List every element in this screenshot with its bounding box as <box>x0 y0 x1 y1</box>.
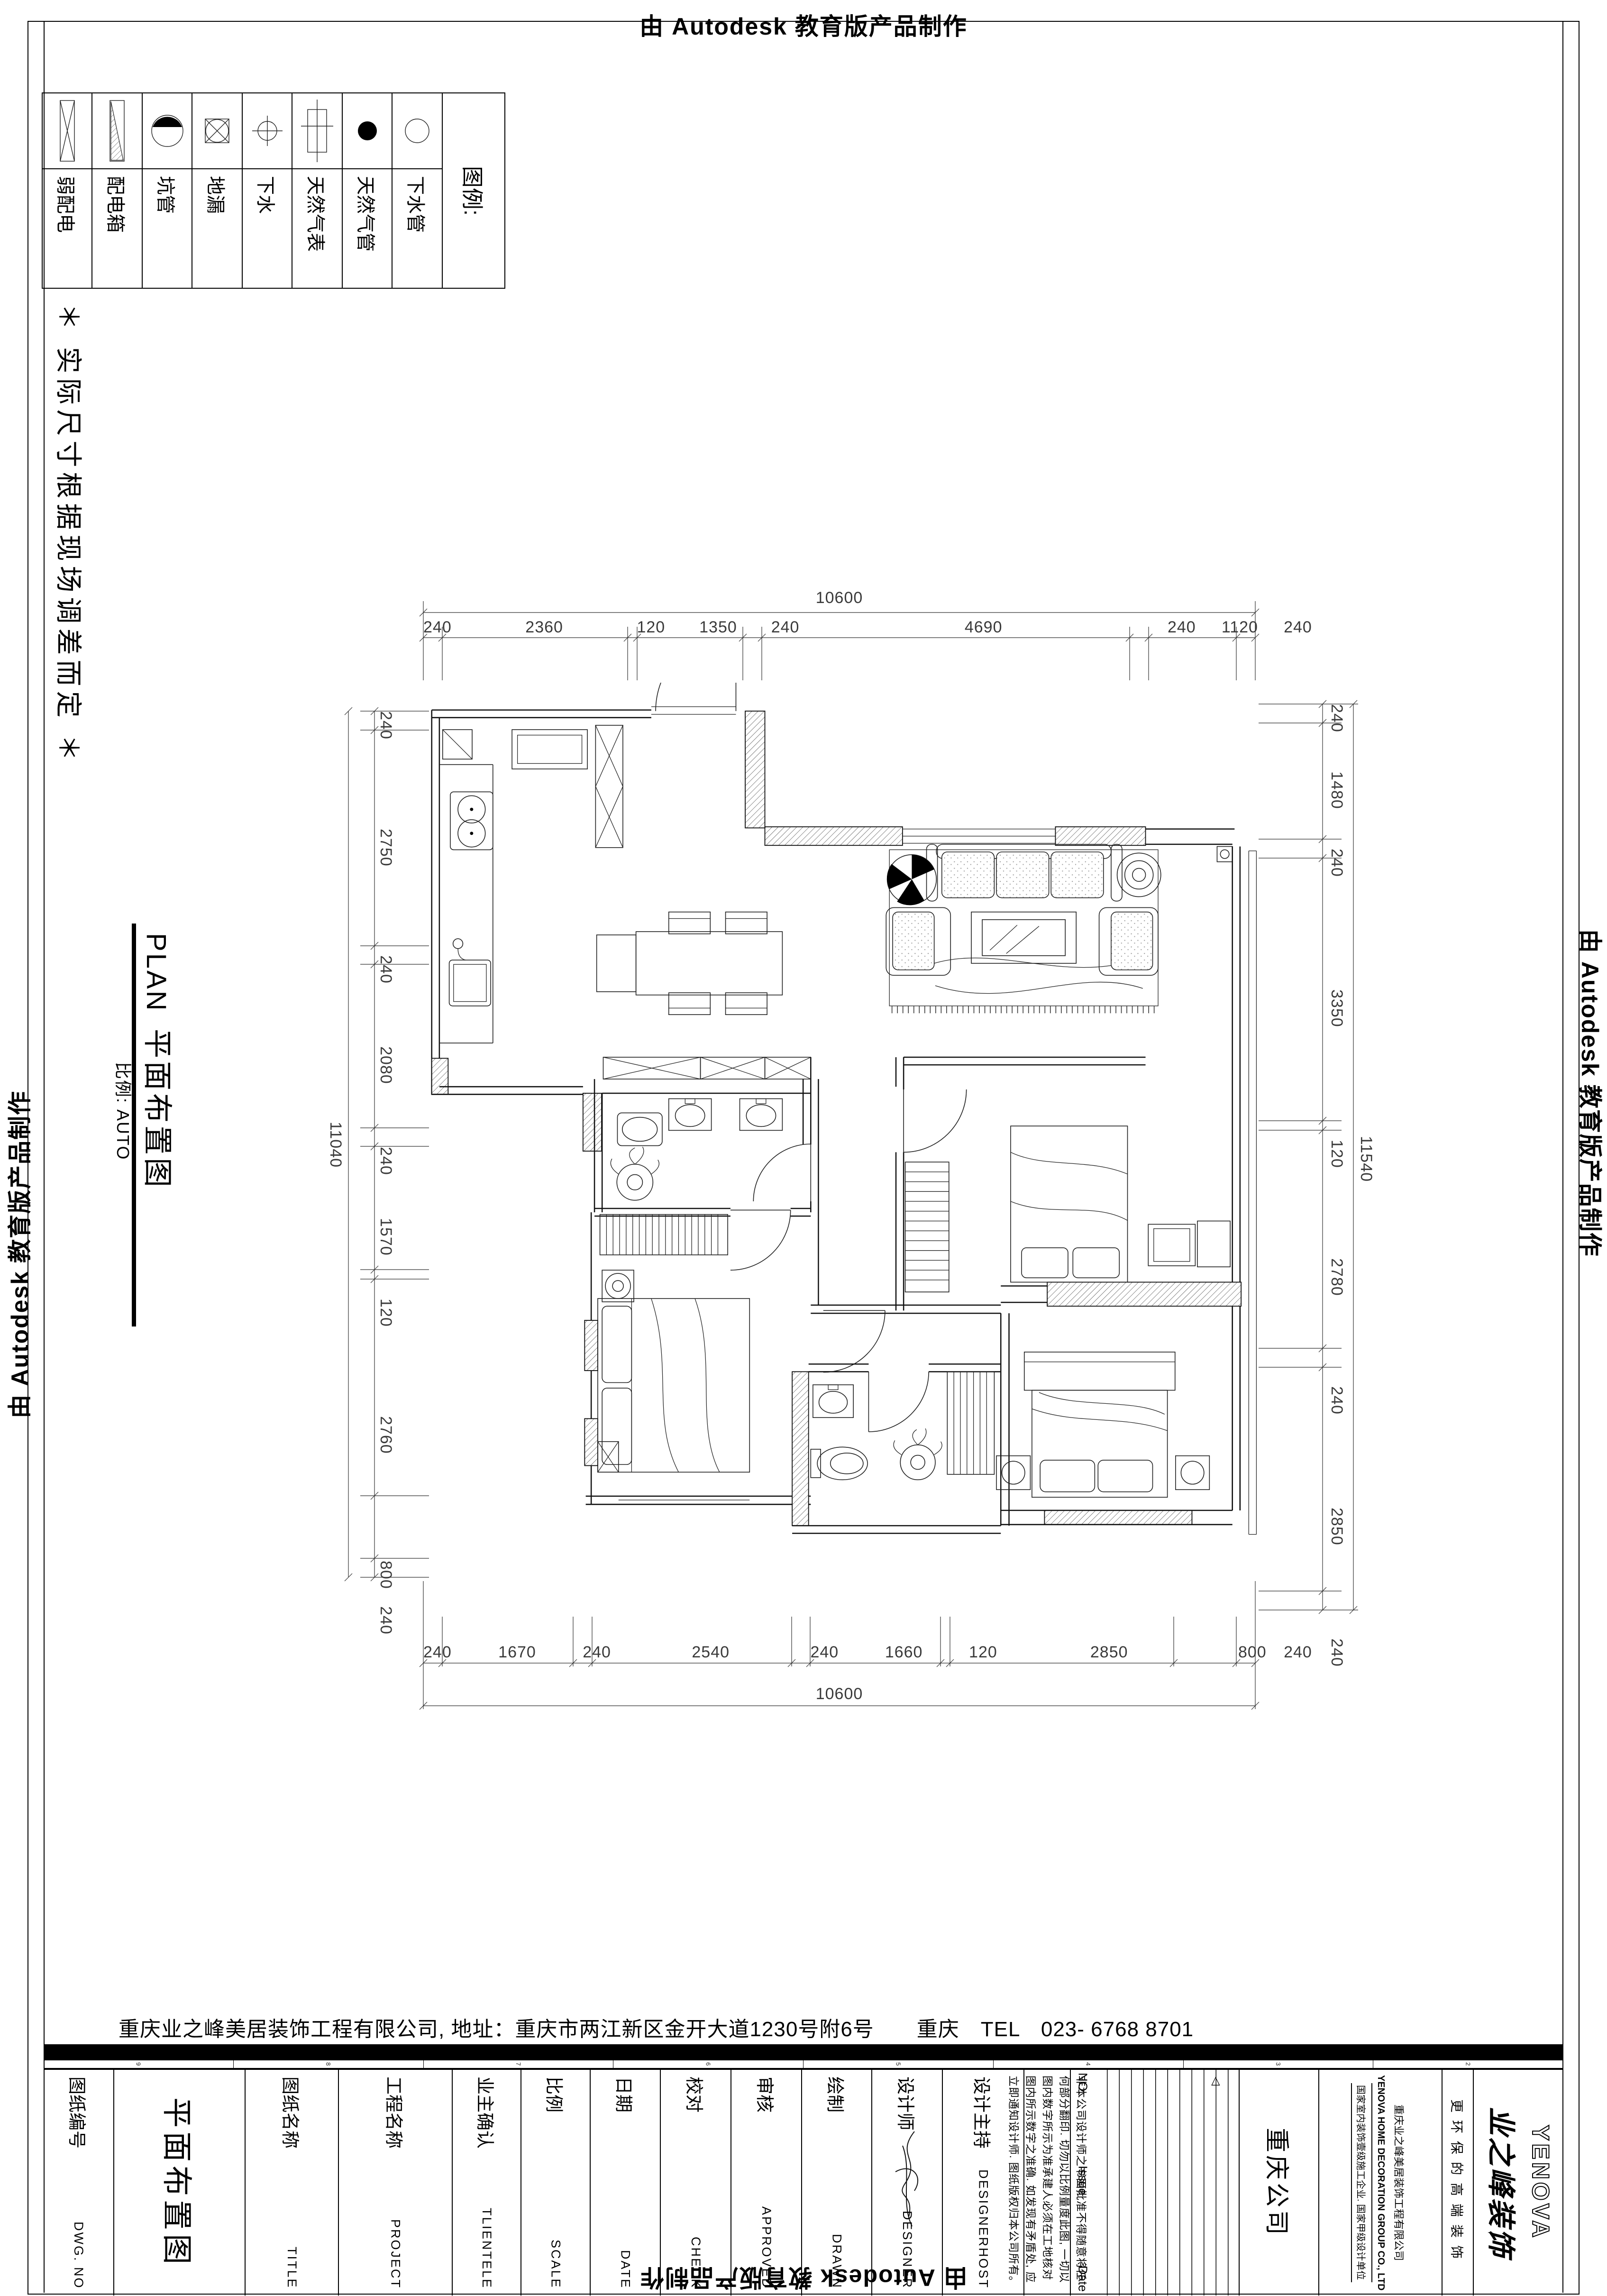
sewer-pipe-symbol <box>393 93 441 169</box>
dim-value: 240 <box>1329 849 1345 877</box>
field-date: 日期 DATE <box>591 2070 661 2296</box>
dim-value: 240 <box>423 1644 452 1660</box>
dim-value: 120 <box>378 1299 394 1327</box>
logo-en: YENOVA <box>1527 2125 1554 2240</box>
dim-value: 240 <box>583 1644 611 1660</box>
zone-number: 7 <box>515 2062 522 2066</box>
legend-item: 弱配电 <box>43 93 92 288</box>
dim-value: 1350 <box>699 619 737 635</box>
field-title: 图纸名称 TITLE <box>246 2070 339 2296</box>
company-small-en: YENOVA HOME DECORATION GROUP CO., LTD <box>1375 2075 1386 2290</box>
company-small-cn: 重庆业之峰美居装饰工程有限公司 <box>1392 2104 1407 2261</box>
autodesk-banner-top: 由 Autodesk 教育版产品制作 <box>0 8 1607 42</box>
field-label-cn: 设计师 <box>894 2076 920 2131</box>
legend-label: 地漏 <box>203 176 231 288</box>
dim-value: 1660 <box>885 1644 923 1660</box>
copyright-notes: 非本公司设计师之书面批准不得随意将任何部分翻印. 切勿以比例量度此图, 一切以图… <box>1024 2070 1071 2296</box>
field-label-en: DATE <box>618 2250 633 2289</box>
field-label-en: PROJECT <box>388 2219 402 2289</box>
dim-value: 240 <box>1329 1638 1345 1667</box>
dim-total-left: 11040 <box>326 1100 345 1190</box>
dim-value: 2750 <box>378 829 394 867</box>
field-label-cn: 日期 <box>612 2076 639 2113</box>
legend-item: 天然气管 <box>343 93 393 288</box>
zone-number: 9 <box>135 2062 142 2066</box>
dim-value: 2540 <box>692 1644 730 1660</box>
field-client-confirm: 业主确认 TLIENTELE <box>453 2070 522 2296</box>
revision-no-label: NO. <box>1076 2073 1090 2095</box>
dim-value: 120 <box>969 1644 997 1660</box>
floor-plan <box>422 683 1266 1626</box>
autodesk-banner-left: 由 Autodesk 教育版产品制作 <box>1 1090 35 1418</box>
dim-segments-top: 2402360120135024046902401120240 <box>423 617 1255 635</box>
bedroom2-furniture <box>598 1215 749 1473</box>
field-approved: 审核 APPROVED <box>731 2070 802 2296</box>
kitchen-fixtures <box>439 725 623 1043</box>
zone-number: 6 <box>705 2062 712 2066</box>
plan-title-en: PLAN <box>140 933 172 1013</box>
zone-number-strip: 98765432 <box>44 2060 1563 2069</box>
zone-number: 8 <box>325 2062 332 2066</box>
dim-total-top: 10600 <box>423 590 1255 606</box>
legend-label: 天然气管 <box>354 176 381 288</box>
logo-cn: 业之峰装饰 <box>1483 2107 1524 2259</box>
dim-value: 240 <box>1284 1644 1312 1660</box>
field-label-cn: 审核 <box>753 2076 779 2113</box>
field-label-cn: 工程名称 <box>382 2076 408 2149</box>
bathroom1-fixtures <box>611 1099 782 1200</box>
drain-crosshair-symbol <box>243 93 292 169</box>
dim-segments-left: 2402750240208024015701202760800240 <box>376 711 395 1578</box>
dining-furniture <box>597 912 783 1015</box>
disclaimer-note: ＊ 实际尺寸根据现场调差而定 ＊ <box>51 303 90 766</box>
plan-scale-label: 比例: AUTO <box>112 1062 137 1160</box>
dim-value: 120 <box>1329 1140 1345 1168</box>
dim-value: 800 <box>1238 1644 1267 1660</box>
field-label-cn: 图纸编号 <box>65 2076 91 2149</box>
legend-item: 配电箱 <box>92 93 142 288</box>
plan-title-cn: 平面布置图 <box>139 1029 182 1190</box>
revision-marker: △ <box>1211 2074 1220 2087</box>
dim-value: 240 <box>378 1606 394 1635</box>
field-label-cn: 图纸名称 <box>279 2076 305 2149</box>
field-label-cn: 业主确认 <box>474 2076 500 2149</box>
company-small-print: 重庆业之峰美居装饰工程有限公司 YENOVA HOME DECORATION G… <box>1319 2070 1442 2296</box>
field-drawn: 绘制 DRAWN <box>802 2070 873 2296</box>
dim-value: 2360 <box>525 619 563 635</box>
company-address-line: 重庆业之峰美居装饰工程有限公司, 地址：重庆市两江新区金开大道1230号附6号 … <box>119 2012 1194 2042</box>
legend-label: 坑管 <box>154 176 181 288</box>
field-label-cn: 设计主持 <box>970 2076 996 2149</box>
dim-value: 240 <box>1329 704 1345 732</box>
dim-value: 1570 <box>378 1218 394 1256</box>
legend-label: 下水 <box>254 176 281 288</box>
field-check: 校对 CHECK <box>661 2070 731 2296</box>
legend-item: 地漏 <box>192 93 242 288</box>
dim-value: 240 <box>771 619 800 635</box>
dim-value: 240 <box>1329 1386 1345 1415</box>
gas-meter-symbol <box>292 93 341 169</box>
dim-value: 240 <box>810 1644 839 1660</box>
field-label-en: DESIGNER <box>900 2211 914 2289</box>
dim-value: 240 <box>1168 619 1196 635</box>
bathroom2-fixtures <box>811 1372 994 1480</box>
legend-item: 天然气表 <box>292 93 342 288</box>
field-label-en: CHECK <box>688 2237 703 2289</box>
legend-label: 下水管 <box>403 176 431 288</box>
field-label-cn: 绘制 <box>823 2076 849 2113</box>
field-label-en: SCALE <box>548 2240 563 2289</box>
box-hatch-symbol <box>92 93 141 169</box>
field-label-en: TITLE <box>284 2247 299 2289</box>
branch-name: 重庆公司 <box>1240 2070 1319 2296</box>
field-label-en: DWG. NO <box>71 2222 86 2289</box>
dim-value: 240 <box>423 619 452 635</box>
field-label-en: DESIGNERHOST <box>976 2169 990 2289</box>
dim-value: 2760 <box>378 1416 394 1454</box>
separator-bar <box>44 2044 1563 2060</box>
bedroom3-furniture <box>996 1352 1209 1497</box>
inner-border-right <box>1562 21 1563 2293</box>
legend-label: 配电箱 <box>103 176 131 288</box>
zone-number: 2 <box>1465 2062 1472 2066</box>
dim-value: 240 <box>378 955 394 984</box>
dim-segments-right: 2401480240335012027802402850240 <box>1327 704 1346 1610</box>
dim-total-bottom: 10600 <box>423 1686 1255 1702</box>
legend-label: 天然气表 <box>303 176 331 288</box>
field-label-cn: 校对 <box>683 2076 709 2113</box>
drawing-title-value: 平面布置图 <box>114 2070 246 2296</box>
legend-title: 图例: <box>458 166 489 216</box>
master-bedroom-furniture <box>905 1126 1231 1292</box>
field-scale: 比例 SCALE <box>521 2070 591 2296</box>
zone-number: 4 <box>1085 2062 1092 2066</box>
revision-date-label: Date <box>1076 2266 1090 2292</box>
dim-value: 3350 <box>1329 989 1345 1027</box>
autodesk-banner-right: 由 Autodesk 教育版产品制作 <box>1575 929 1607 1257</box>
dim-value: 800 <box>378 1561 394 1589</box>
dim-value: 2850 <box>1090 1644 1128 1660</box>
dim-total-right: 11540 <box>1357 1114 1376 1204</box>
box-x-symbol <box>43 93 91 169</box>
dim-value: 240 <box>1284 619 1312 635</box>
field-project: 工程名称 PROJECT <box>339 2070 453 2296</box>
gas-pipe-symbol <box>343 93 392 169</box>
floor-drain-symbol <box>192 93 241 169</box>
dim-value: 2780 <box>1329 1258 1345 1296</box>
dim-value: 1670 <box>498 1644 536 1660</box>
dim-value: 4690 <box>965 619 1003 635</box>
walls <box>432 683 1257 1535</box>
zone-number: 5 <box>895 2062 902 2066</box>
slogan: 更环保的高端装饰 <box>1443 2070 1474 2296</box>
field-label-en: DRAWN <box>829 2234 844 2289</box>
dim-value: 1480 <box>1329 771 1345 809</box>
field-designer: 设计师 DESIGNER <box>872 2070 943 2296</box>
circle-halffill-symbol <box>143 93 192 169</box>
dim-value: 2080 <box>378 1046 394 1084</box>
revision-table: NO. Issue Date △ <box>1071 2070 1240 2296</box>
field-label-en: TLIENTELE <box>479 2208 494 2289</box>
field-dwg-no: 图纸编号 DWG. NO <box>44 2070 114 2296</box>
dim-value: 2850 <box>1329 1508 1345 1546</box>
legend-header-cell: 图例: <box>443 93 504 288</box>
dim-value: 1120 <box>1222 619 1258 635</box>
dim-value: 240 <box>378 711 394 740</box>
dim-segments-bottom: 2401670240254024016601202850800240 <box>423 1642 1255 1660</box>
company-small-cert: 国家室内装饰壹级施工企业. 国家甲级设计单位 <box>1355 2085 1369 2280</box>
field-label-cn: 比例 <box>543 2076 569 2113</box>
legend-table: 弱配电 配电箱 坑管 地漏 下水 <box>42 92 505 289</box>
legend-item: 下水 <box>243 93 292 288</box>
legend-item: 坑管 <box>143 93 192 288</box>
drawing-sheet: 由 Autodesk 教育版产品制作 由 Autodesk 教育版产品制作 由 … <box>0 0 1607 2296</box>
legend-item: 下水管 <box>393 93 442 288</box>
revision-issue-label: Issue <box>1076 2166 1090 2195</box>
zone-number: 3 <box>1275 2062 1282 2066</box>
dim-value: 240 <box>378 1147 394 1175</box>
yenova-logo: 业之峰装饰 YENOVA <box>1474 2070 1563 2296</box>
living-furniture <box>886 844 1161 1010</box>
field-label-en: APPROVED <box>759 2206 774 2289</box>
inner-border-left <box>44 21 45 2293</box>
revision-rows <box>1096 2070 1236 2296</box>
title-block: 图纸编号 DWG. NO 平面布置图 图纸名称 TITLE 工程名称 PROJE… <box>44 2069 1563 2296</box>
legend-label: 弱配电 <box>54 176 81 288</box>
dim-value: 120 <box>637 619 665 635</box>
